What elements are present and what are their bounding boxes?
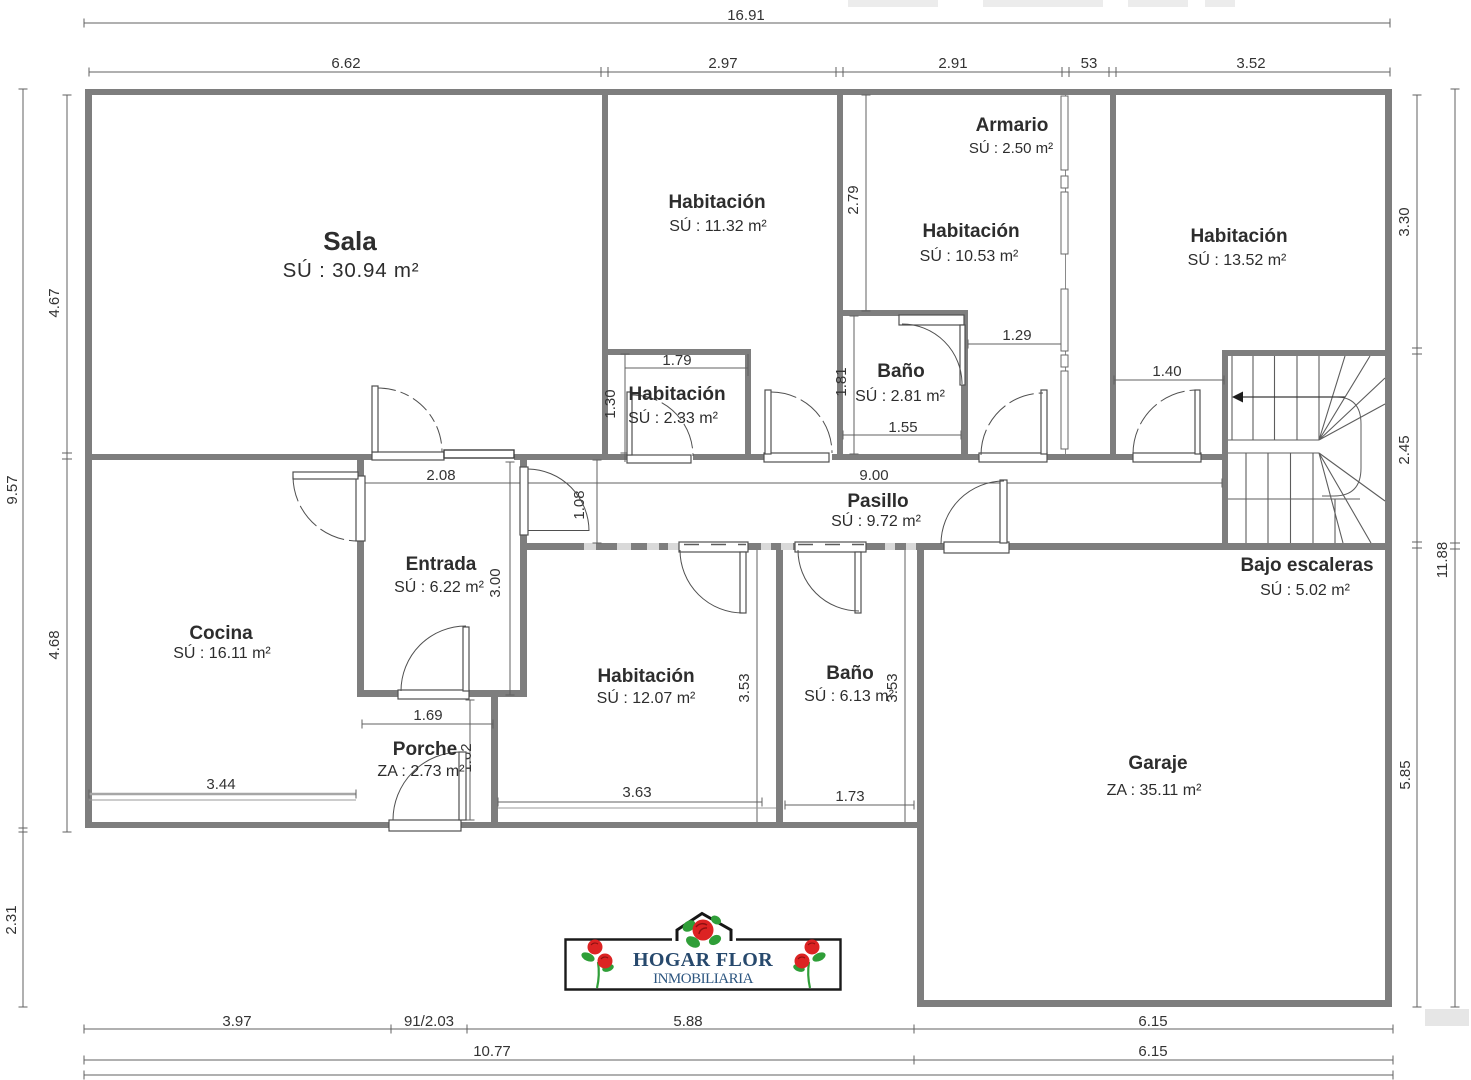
svg-text:SÚ : 13.52 m²: SÚ : 13.52 m² xyxy=(1188,250,1287,269)
svg-text:10.77: 10.77 xyxy=(473,1043,511,1060)
svg-text:SÚ : 30.94 m²: SÚ : 30.94 m² xyxy=(283,259,420,282)
svg-text:SÚ : 6.13 m²: SÚ : 6.13 m² xyxy=(804,686,894,705)
svg-text:53: 53 xyxy=(1081,55,1098,72)
svg-text:SÚ : 5.02 m²: SÚ : 5.02 m² xyxy=(1260,580,1350,599)
svg-text:1.73: 1.73 xyxy=(835,788,864,805)
svg-text:Habitación: Habitación xyxy=(1190,226,1287,247)
svg-text:2.45: 2.45 xyxy=(1396,435,1413,464)
svg-text:4.67: 4.67 xyxy=(46,288,63,317)
svg-text:2.97: 2.97 xyxy=(708,55,737,72)
svg-text:SÚ : 6.22 m²: SÚ : 6.22 m² xyxy=(394,577,484,596)
svg-text:1.69: 1.69 xyxy=(413,707,442,724)
svg-text:Habitación: Habitación xyxy=(597,666,694,687)
svg-text:SÚ : 2.81 m²: SÚ : 2.81 m² xyxy=(855,386,945,405)
svg-text:1.81: 1.81 xyxy=(833,367,850,396)
svg-text:16.91: 16.91 xyxy=(727,7,765,24)
svg-text:Garaje: Garaje xyxy=(1128,753,1187,774)
svg-text:Habitación: Habitación xyxy=(628,384,725,405)
svg-text:5.88: 5.88 xyxy=(673,1013,702,1030)
svg-text:6.62: 6.62 xyxy=(331,55,360,72)
svg-text:1.79: 1.79 xyxy=(662,352,691,369)
svg-text:Armario: Armario xyxy=(976,115,1049,136)
svg-text:HOGAR FLOR: HOGAR FLOR xyxy=(633,949,773,971)
svg-text:Baño: Baño xyxy=(826,663,874,684)
svg-text:9.57: 9.57 xyxy=(4,475,21,504)
svg-text:Bajo escaleras: Bajo escaleras xyxy=(1240,555,1373,576)
svg-text:6.15: 6.15 xyxy=(1138,1013,1167,1030)
svg-text:91/2.03: 91/2.03 xyxy=(404,1013,454,1030)
svg-text:3.52: 3.52 xyxy=(1236,55,1265,72)
svg-text:2.91: 2.91 xyxy=(938,55,967,72)
svg-text:3.63: 3.63 xyxy=(622,784,651,801)
svg-text:SÚ : 11.32 m²: SÚ : 11.32 m² xyxy=(669,216,767,235)
svg-text:SÚ : 2.50 m²: SÚ : 2.50 m² xyxy=(969,140,1053,157)
svg-text:Baño: Baño xyxy=(877,361,925,382)
svg-text:5.85: 5.85 xyxy=(1397,760,1414,789)
svg-text:3.00: 3.00 xyxy=(487,568,504,597)
svg-text:Habitación: Habitación xyxy=(922,221,1019,242)
svg-text:2.08: 2.08 xyxy=(426,467,455,484)
svg-text:1.30: 1.30 xyxy=(602,389,619,418)
svg-text:Sala: Sala xyxy=(323,226,377,256)
svg-text:3.30: 3.30 xyxy=(1396,207,1413,236)
svg-text:2.79: 2.79 xyxy=(845,185,862,214)
svg-text:1.08: 1.08 xyxy=(571,490,588,519)
svg-text:INMOBILIARIA: INMOBILIARIA xyxy=(653,971,753,987)
svg-text:SÚ : 2.33 m²: SÚ : 2.33 m² xyxy=(628,408,718,427)
svg-text:3.97: 3.97 xyxy=(222,1013,251,1030)
svg-text:1.40: 1.40 xyxy=(1152,363,1181,380)
svg-text:6.15: 6.15 xyxy=(1138,1043,1167,1060)
svg-text:3.44: 3.44 xyxy=(206,776,235,793)
svg-text:SÚ : 16.11 m²: SÚ : 16.11 m² xyxy=(173,643,271,662)
svg-text:ZA : 35.11 m²: ZA : 35.11 m² xyxy=(1107,782,1203,799)
svg-text:1.55: 1.55 xyxy=(888,419,917,436)
svg-text:Pasillo: Pasillo xyxy=(847,491,908,512)
svg-text:SÚ : 9.72 m²: SÚ : 9.72 m² xyxy=(831,511,921,530)
svg-text:Porche: Porche xyxy=(393,739,457,760)
svg-text:SÚ : 10.53 m²: SÚ : 10.53 m² xyxy=(920,246,1019,265)
svg-text:2.31: 2.31 xyxy=(3,905,20,934)
svg-text:9.00: 9.00 xyxy=(859,467,888,484)
svg-text:SÚ : 12.07 m²: SÚ : 12.07 m² xyxy=(597,688,696,707)
svg-text:ZA : 2.73 m²: ZA : 2.73 m² xyxy=(377,763,465,780)
svg-text:Habitación: Habitación xyxy=(668,192,765,213)
svg-text:11.88: 11.88 xyxy=(1434,542,1451,578)
svg-text:Entrada: Entrada xyxy=(406,554,477,575)
svg-text:4.68: 4.68 xyxy=(46,630,63,659)
svg-text:1.29: 1.29 xyxy=(1002,327,1031,344)
svg-text:3.53: 3.53 xyxy=(736,673,753,702)
svg-text:Cocina: Cocina xyxy=(189,623,253,644)
